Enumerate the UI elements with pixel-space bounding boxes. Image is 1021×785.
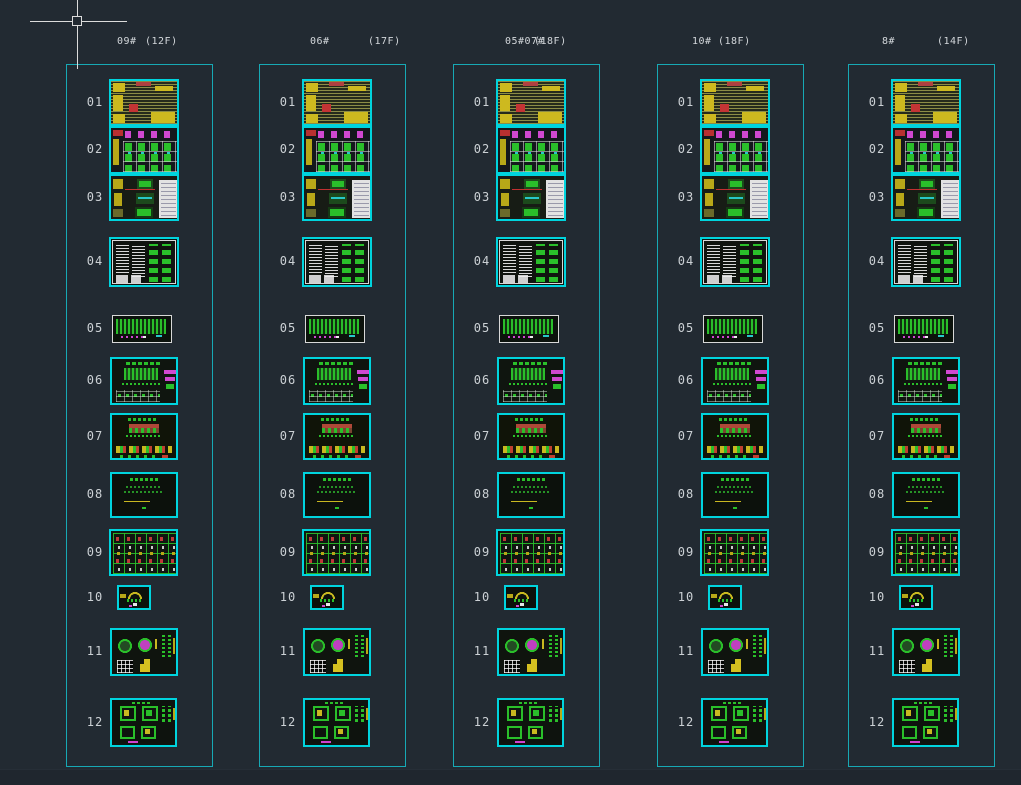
sheet-number: 05 xyxy=(275,321,301,335)
notes-and-details-list-sheet-thumbnail[interactable] xyxy=(496,237,566,287)
sheet-number: 12 xyxy=(469,715,495,729)
enlarged-plan-detail-sheet-thumbnail[interactable] xyxy=(497,628,565,676)
sheet-number: 11 xyxy=(864,644,890,658)
stair-detail-sheet-thumbnail[interactable] xyxy=(303,698,370,747)
column-header: 10#(18F) xyxy=(657,36,804,48)
sheet-number: 10 xyxy=(673,590,699,604)
elevation-sheet-thumbnail[interactable] xyxy=(110,357,178,405)
column-header: 05#07#(18F) xyxy=(453,36,600,48)
elevation-details-sheet-thumbnail[interactable] xyxy=(892,413,960,460)
site-plan-small-sheet-thumbnail[interactable] xyxy=(305,315,365,343)
sheet-number: 01 xyxy=(82,95,108,109)
elevation-details-sheet-thumbnail[interactable] xyxy=(110,413,178,460)
sheet-number: 10 xyxy=(275,590,301,604)
floor-count-label: (12F) xyxy=(145,36,178,47)
sheet-number: 04 xyxy=(673,254,699,268)
enlarged-plan-detail-sheet-thumbnail[interactable] xyxy=(303,628,371,676)
sheet-number: 10 xyxy=(864,590,890,604)
sheet-number: 10 xyxy=(469,590,495,604)
crosshair-pickbox-icon xyxy=(72,16,82,26)
cover-notes-sheet-thumbnail[interactable] xyxy=(109,79,179,126)
sheet-number: 05 xyxy=(673,321,699,335)
stair-detail-sheet-thumbnail[interactable] xyxy=(892,698,959,747)
sheet-number: 09 xyxy=(864,545,890,559)
details-grid-sheet-thumbnail[interactable] xyxy=(302,529,371,576)
plans-and-table-sheet-thumbnail[interactable] xyxy=(302,174,372,221)
elevation-details-sheet-thumbnail[interactable] xyxy=(303,413,371,460)
section-notes-sheet-thumbnail[interactable] xyxy=(110,472,178,518)
sheet-number: 09 xyxy=(469,545,495,559)
sheet-number: 03 xyxy=(864,190,890,204)
details-grid-sheet-thumbnail[interactable] xyxy=(700,529,769,576)
sheet-number: 12 xyxy=(864,715,890,729)
sheet-number: 02 xyxy=(469,142,495,156)
building-number-label: 10# xyxy=(692,36,712,47)
sheet-number: 02 xyxy=(673,142,699,156)
site-plan-small-sheet-thumbnail[interactable] xyxy=(894,315,954,343)
details-grid-sheet-thumbnail[interactable] xyxy=(496,529,565,576)
cover-notes-sheet-thumbnail[interactable] xyxy=(891,79,961,126)
building-number-label: 09# xyxy=(117,36,137,47)
sheet-number: 07 xyxy=(673,429,699,443)
column-header: 06#(17F) xyxy=(259,36,406,48)
sheet-number: 12 xyxy=(82,715,108,729)
section-notes-sheet-thumbnail[interactable] xyxy=(497,472,565,518)
sheet-number: 03 xyxy=(469,190,495,204)
notes-and-details-list-sheet-thumbnail[interactable] xyxy=(109,237,179,287)
sheet-number: 03 xyxy=(673,190,699,204)
small-detail-sheet-thumbnail[interactable] xyxy=(310,585,344,610)
section-notes-sheet-thumbnail[interactable] xyxy=(303,472,371,518)
stair-detail-sheet-thumbnail[interactable] xyxy=(110,698,177,747)
sheet-number: 06 xyxy=(275,373,301,387)
floor-plans-sheet-thumbnail[interactable] xyxy=(891,126,961,174)
floor-count-label: (18F) xyxy=(718,36,751,47)
sheet-number: 08 xyxy=(673,487,699,501)
sheet-number: 06 xyxy=(864,373,890,387)
floor-plans-sheet-thumbnail[interactable] xyxy=(109,126,179,174)
elevation-sheet-thumbnail[interactable] xyxy=(497,357,565,405)
sheet-number: 03 xyxy=(82,190,108,204)
sheet-number: 07 xyxy=(864,429,890,443)
floor-count-label: (18F) xyxy=(534,36,567,47)
cad-canvas[interactable]: 09#(12F)01020304050607080910111206#(17F)… xyxy=(0,0,1021,785)
small-detail-sheet-thumbnail[interactable] xyxy=(117,585,151,610)
stair-detail-sheet-thumbnail[interactable] xyxy=(701,698,768,747)
sheet-number: 05 xyxy=(469,321,495,335)
sheet-number: 04 xyxy=(275,254,301,268)
sheet-number: 11 xyxy=(275,644,301,658)
floor-plans-sheet-thumbnail[interactable] xyxy=(302,126,372,174)
sheet-number: 11 xyxy=(673,644,699,658)
sheet-number: 01 xyxy=(864,95,890,109)
floor-count-label: (14F) xyxy=(937,36,970,47)
sheet-number: 11 xyxy=(82,644,108,658)
building-number-label: 06# xyxy=(310,36,330,47)
column-header: 8#(14F) xyxy=(848,36,995,48)
enlarged-plan-detail-sheet-thumbnail[interactable] xyxy=(701,628,769,676)
sheet-number: 02 xyxy=(864,142,890,156)
small-detail-sheet-thumbnail[interactable] xyxy=(899,585,933,610)
sheet-number: 01 xyxy=(275,95,301,109)
sheet-number: 06 xyxy=(469,373,495,387)
sheet-number: 12 xyxy=(275,715,301,729)
small-detail-sheet-thumbnail[interactable] xyxy=(708,585,742,610)
floor-count-label: (17F) xyxy=(368,36,401,47)
elevation-sheet-thumbnail[interactable] xyxy=(892,357,960,405)
notes-and-details-list-sheet-thumbnail[interactable] xyxy=(302,237,372,287)
cover-notes-sheet-thumbnail[interactable] xyxy=(302,79,372,126)
details-grid-sheet-thumbnail[interactable] xyxy=(109,529,178,576)
plans-and-table-sheet-thumbnail[interactable] xyxy=(496,174,566,221)
sheet-number: 08 xyxy=(275,487,301,501)
details-grid-sheet-thumbnail[interactable] xyxy=(891,529,960,576)
sheet-number: 12 xyxy=(673,715,699,729)
notes-and-details-list-sheet-thumbnail[interactable] xyxy=(891,237,961,287)
sheet-number: 07 xyxy=(275,429,301,443)
sheet-number: 09 xyxy=(275,545,301,559)
floor-plans-sheet-thumbnail[interactable] xyxy=(496,126,566,174)
crosshair-vertical-line xyxy=(77,0,78,69)
sheet-number: 07 xyxy=(82,429,108,443)
sheet-number: 04 xyxy=(864,254,890,268)
sheet-number: 09 xyxy=(82,545,108,559)
cover-notes-sheet-thumbnail[interactable] xyxy=(700,79,770,126)
sheet-number: 04 xyxy=(469,254,495,268)
plans-and-table-sheet-thumbnail[interactable] xyxy=(700,174,770,221)
enlarged-plan-detail-sheet-thumbnail[interactable] xyxy=(110,628,178,676)
elevation-details-sheet-thumbnail[interactable] xyxy=(701,413,769,460)
sheet-number: 11 xyxy=(469,644,495,658)
elevation-sheet-thumbnail[interactable] xyxy=(303,357,371,405)
plans-and-table-sheet-thumbnail[interactable] xyxy=(891,174,961,221)
sheet-number: 02 xyxy=(82,142,108,156)
floor-plans-sheet-thumbnail[interactable] xyxy=(700,126,770,174)
sheet-number: 08 xyxy=(864,487,890,501)
notes-and-details-list-sheet-thumbnail[interactable] xyxy=(700,237,770,287)
column-header: 09#(12F) xyxy=(66,36,213,48)
sheet-number: 06 xyxy=(82,373,108,387)
small-detail-sheet-thumbnail[interactable] xyxy=(504,585,538,610)
stair-detail-sheet-thumbnail[interactable] xyxy=(497,698,564,747)
sheet-number: 02 xyxy=(275,142,301,156)
sheet-number: 08 xyxy=(469,487,495,501)
sheet-number: 07 xyxy=(469,429,495,443)
section-notes-sheet-thumbnail[interactable] xyxy=(701,472,769,518)
site-plan-small-sheet-thumbnail[interactable] xyxy=(499,315,559,343)
plans-and-table-sheet-thumbnail[interactable] xyxy=(109,174,179,221)
sheet-number: 08 xyxy=(82,487,108,501)
sheet-number: 04 xyxy=(82,254,108,268)
section-notes-sheet-thumbnail[interactable] xyxy=(892,472,960,518)
sheet-number: 03 xyxy=(275,190,301,204)
sheet-number: 09 xyxy=(673,545,699,559)
sheet-number: 06 xyxy=(673,373,699,387)
enlarged-plan-detail-sheet-thumbnail[interactable] xyxy=(892,628,960,676)
sheet-number: 05 xyxy=(82,321,108,335)
sheet-number: 01 xyxy=(673,95,699,109)
cover-notes-sheet-thumbnail[interactable] xyxy=(496,79,566,126)
site-plan-small-sheet-thumbnail[interactable] xyxy=(112,315,172,343)
sheet-number: 10 xyxy=(82,590,108,604)
building-number-label: 8# xyxy=(882,36,895,47)
sheet-number: 05 xyxy=(864,321,890,335)
elevation-sheet-thumbnail[interactable] xyxy=(701,357,769,405)
elevation-details-sheet-thumbnail[interactable] xyxy=(497,413,565,460)
site-plan-small-sheet-thumbnail[interactable] xyxy=(703,315,763,343)
sheet-number: 01 xyxy=(469,95,495,109)
canvas-bottom-edge xyxy=(0,769,1021,785)
